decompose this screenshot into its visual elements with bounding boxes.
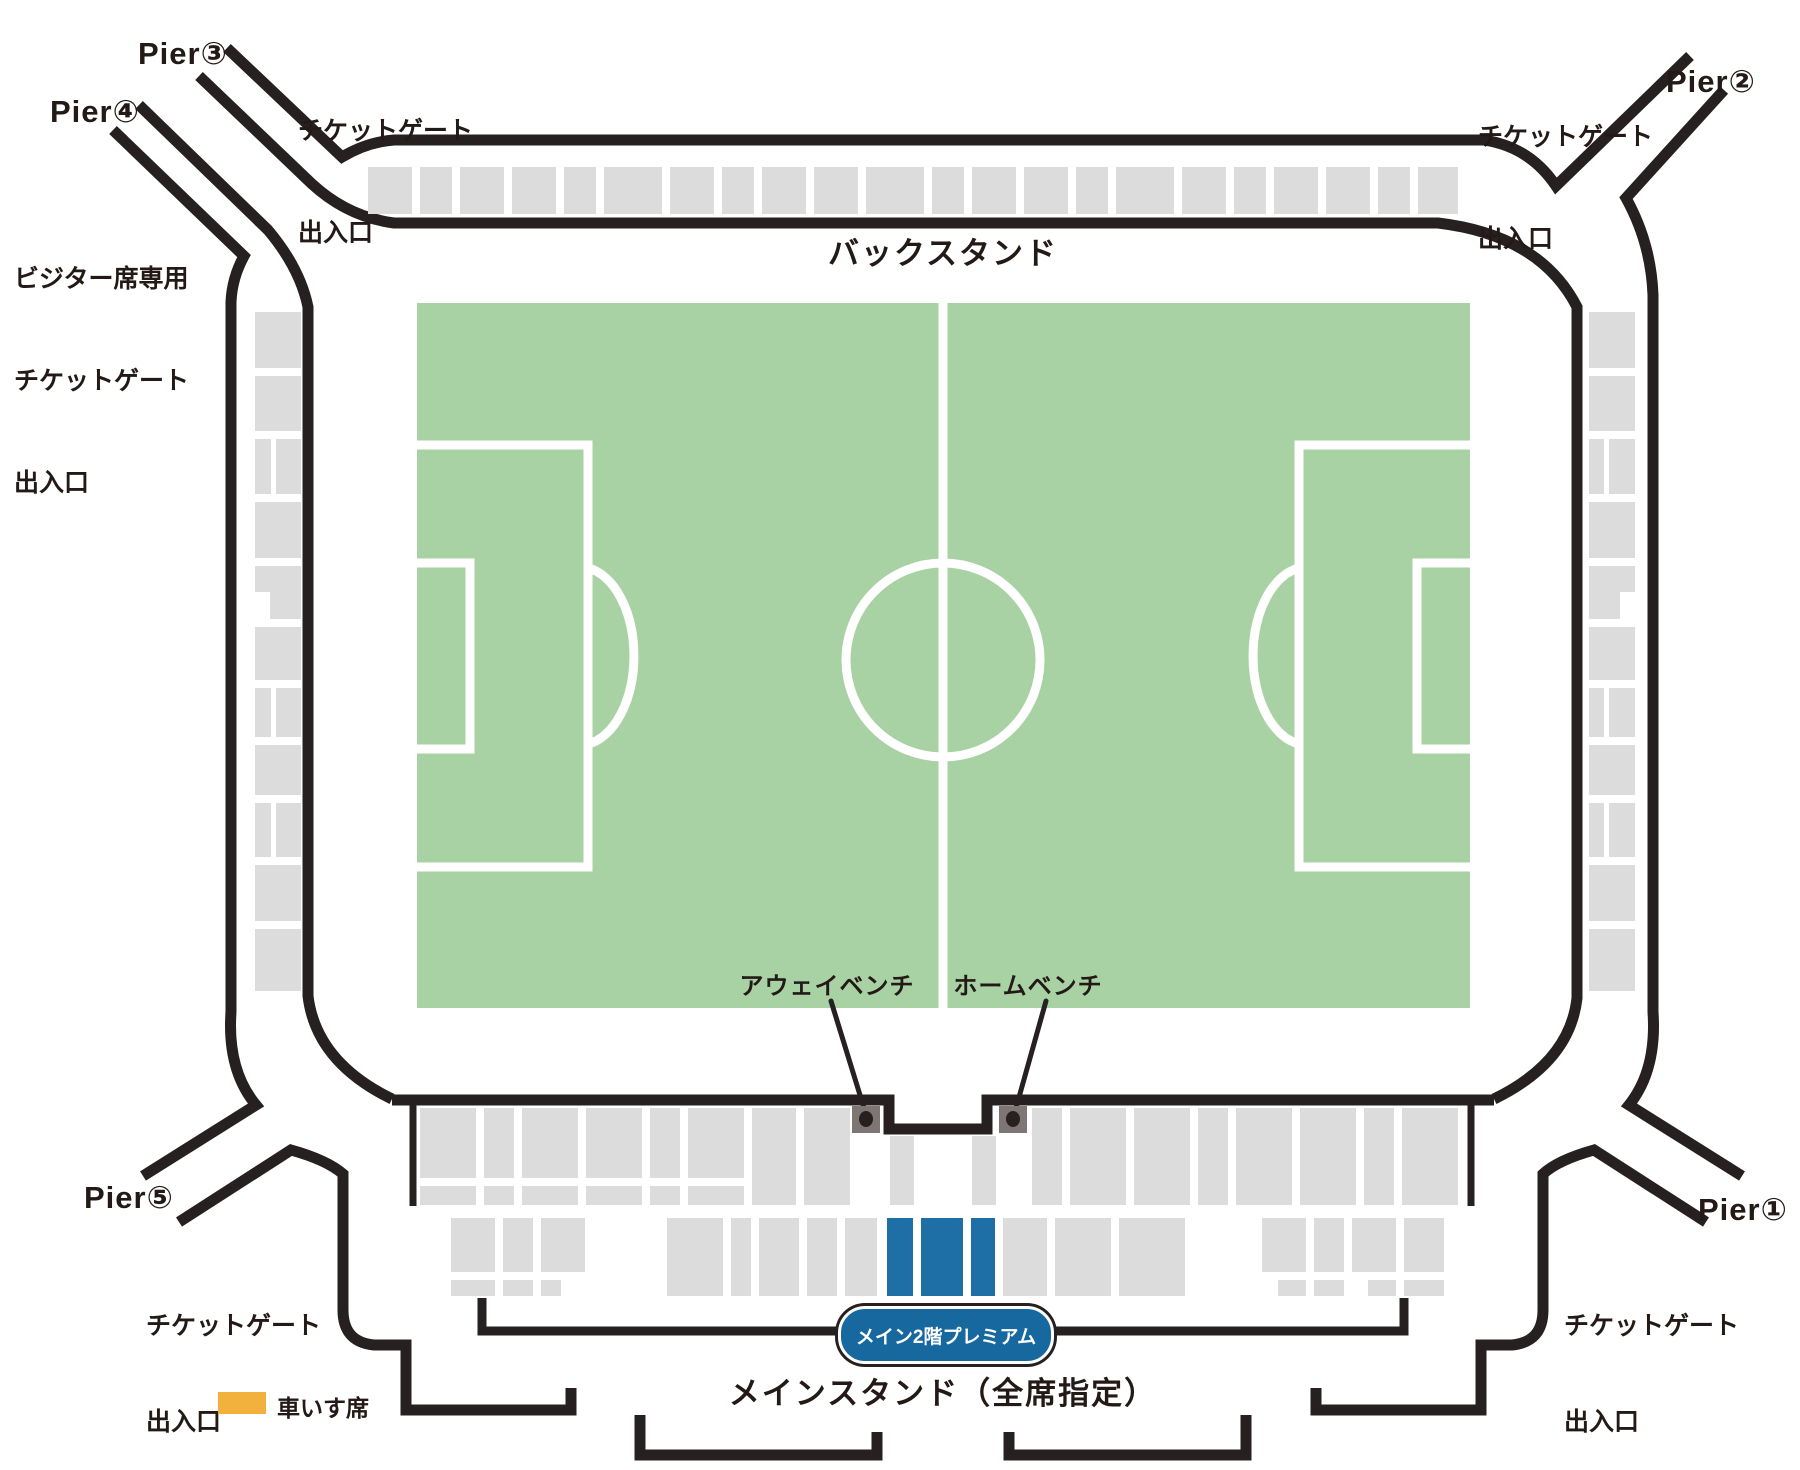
stadium-seating-map: Pier③ Pier④ Pier② Pier⑤ Pier① チケットゲート 出入… [0,0,1800,1470]
pier-2-label: Pier② [1666,64,1756,100]
main-stand-label: メインスタンド（全席指定） [643,1368,1243,1413]
ticket-gate-line1: チケットゲート [146,1310,345,1342]
ticket-gate-line2: 出入口 [298,216,473,250]
ticket-gate-line2: 出入口 [1564,1406,1763,1438]
ticket-gate-top-right-label: チケットゲート 出入口 [1478,52,1653,324]
back-stand-label: バックスタンド [743,228,1143,273]
ticket-gate-bottom-right-label: チケットゲート 出入口 （スロープあり） [1564,1246,1763,1470]
visitor-line1: ビジター席専用 [14,262,189,296]
ticket-gate-line1: チケットゲート [1478,120,1653,154]
pier-1-label: Pier① [1698,1192,1788,1228]
away-bench-leader-line [831,1001,864,1108]
ticket-gate-bottom-left-label: チケットゲート 出入口 （スロープあり） [146,1246,345,1470]
main-stand-tier1-line-with-bench-notch [392,1100,1494,1129]
main-2f-premium-badge: メイン2階プレミアム [838,1306,1054,1364]
home-bench-leader-line [1016,1001,1046,1108]
main-stand-bottom-right-step [1009,1415,1246,1455]
ticket-gate-line2: 出入口 [1478,222,1653,256]
pitch [417,303,1470,1008]
ticket-gate-top-left-label: チケットゲート 出入口 [298,46,473,318]
wheelchair-seat-legend-label: 車いす席 [277,1389,369,1423]
pier-3-label: Pier③ [138,36,228,72]
ticket-gate-line1: チケットゲート [1564,1310,1763,1342]
visitor-ticket-gate-label: ビジター席専用 チケットゲート 出入口 [14,194,189,568]
ticket-gate-line2: 出入口 [14,466,189,500]
home-bench-label: ホームベンチ [928,966,1128,1001]
wheelchair-seat-color-swatch [218,1392,266,1414]
away-bench-label: アウェイベンチ [727,966,927,1001]
pier-5-label: Pier⑤ [84,1180,174,1216]
ticket-gate-line1: チケットゲート [14,364,189,398]
pier-4-label: Pier④ [50,94,140,130]
main-stand-bottom-left-step [640,1415,877,1455]
ticket-gate-line1: チケットゲート [298,114,473,148]
